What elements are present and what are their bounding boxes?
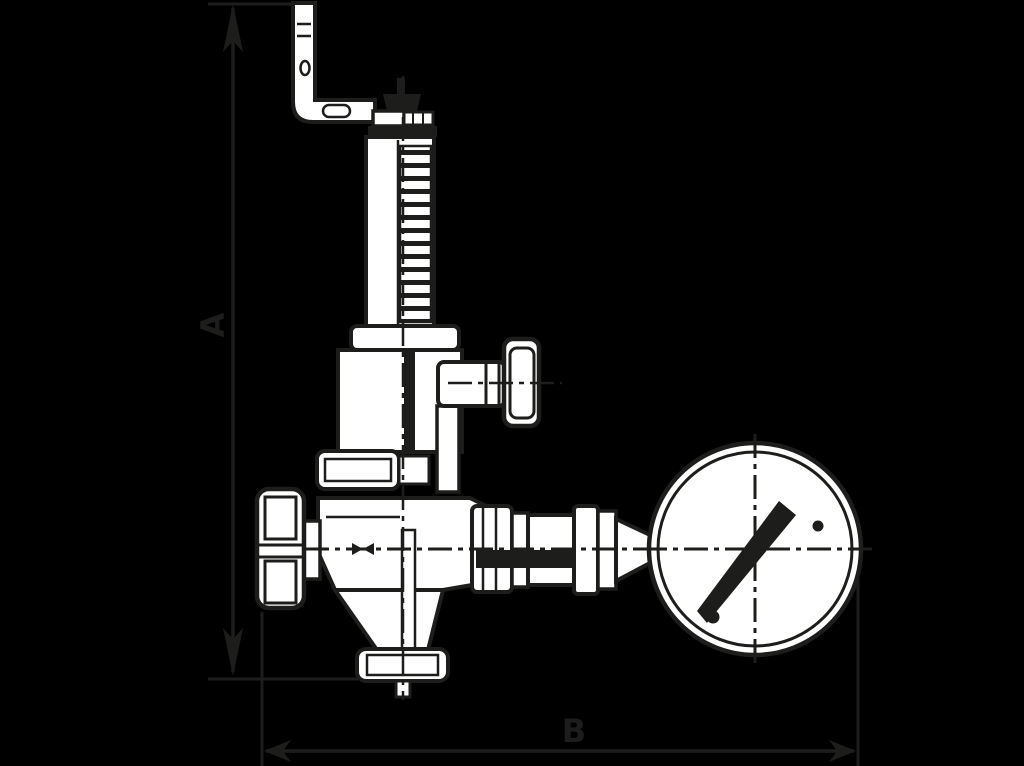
valve-body xyxy=(300,498,486,650)
spring-threads xyxy=(400,146,431,322)
mounting-bracket xyxy=(293,3,375,122)
handwheel xyxy=(257,489,304,608)
side-passage xyxy=(437,406,459,492)
threaded-spring-column xyxy=(366,137,434,329)
gauge-dot-right xyxy=(813,521,824,532)
bonnet-flange-top xyxy=(351,326,459,350)
gauge-dot-left xyxy=(707,611,720,624)
pressure-gauge xyxy=(643,434,874,664)
handwheel-lower xyxy=(265,561,296,603)
drawing-canvas: A B xyxy=(0,0,1024,766)
dimension-b-label: B xyxy=(562,712,586,750)
handwheel-upper xyxy=(265,497,296,539)
body-cone xyxy=(335,590,443,650)
lock-nut xyxy=(373,111,404,126)
technical-drawing: A B xyxy=(0,0,1024,766)
dimension-a-label: A xyxy=(194,312,232,337)
lock-nut-right xyxy=(404,112,433,125)
bonnet-flange-bottom xyxy=(317,451,399,489)
spring-housing xyxy=(317,326,462,492)
housing-center-strip xyxy=(404,352,415,450)
